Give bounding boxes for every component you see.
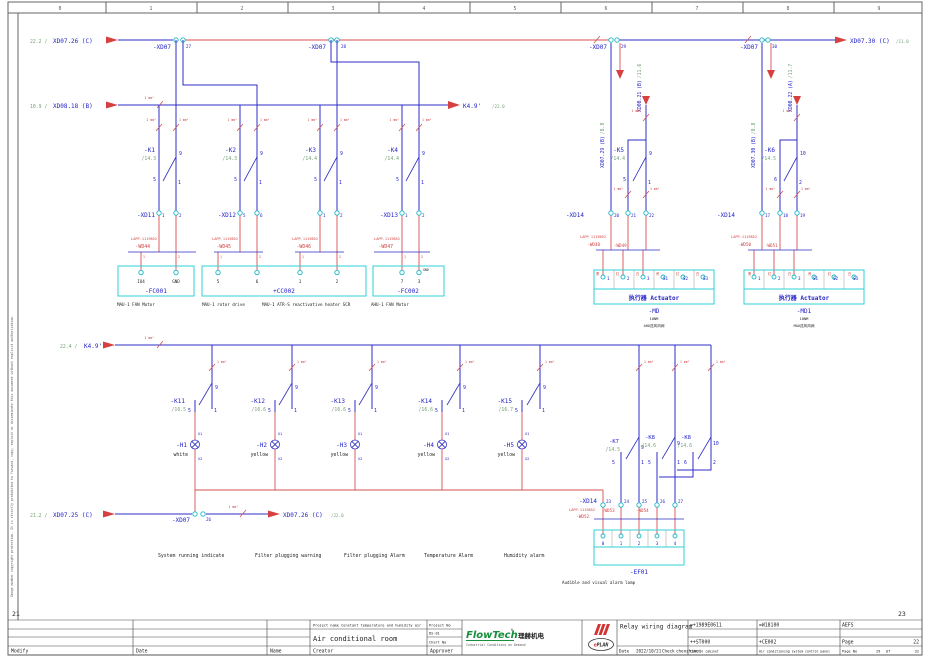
device-caption: AHU-1 FAN Motor bbox=[371, 302, 409, 307]
ruler-col: 0 bbox=[59, 6, 62, 12]
wire-color-mark: 红 bbox=[768, 271, 772, 276]
device-tag: -H2 bbox=[256, 442, 267, 449]
device-xref: /14.5 bbox=[606, 447, 621, 453]
terminal-pin: 23 bbox=[606, 499, 612, 504]
pin-label: 5 bbox=[234, 177, 237, 183]
pin-label: 9 bbox=[375, 385, 378, 391]
device-spec: 10NM bbox=[800, 317, 809, 321]
cable-tag: -WD50 bbox=[738, 242, 751, 247]
field-label-modify: Modify bbox=[11, 649, 28, 655]
pin-label: 9 bbox=[422, 151, 425, 157]
location-code-2: +CE002 bbox=[759, 640, 776, 646]
wire-gauge-label: 1 mm² bbox=[801, 187, 811, 191]
terminal-tag: -XD07 bbox=[740, 44, 758, 51]
device-boxes-top: IO4 GND 5 6 1 2 7 3 GND -FC001 +CC002 -F… bbox=[117, 266, 444, 307]
wire-gauge-label: 1 mm² bbox=[765, 187, 775, 191]
relays-k11-k15-lamps: 1 mm² 1 mm² 1 mm² 1 mm² 1 mm² -K11 /16.5… bbox=[171, 345, 603, 512]
lamp-color: yellow bbox=[498, 452, 515, 458]
check-label: Check bbox=[662, 649, 675, 654]
wire-gauge-label: 1 mm² bbox=[613, 187, 623, 191]
device-tag: -K13 bbox=[331, 398, 346, 405]
ruler-col: 7 bbox=[696, 6, 699, 12]
pin-label: 9 bbox=[543, 385, 546, 391]
wire-xref: /11.7 bbox=[788, 64, 794, 79]
lamp-color: yellow bbox=[331, 452, 348, 458]
box-pin: 3 bbox=[656, 541, 659, 546]
terminal-tag: -XD14 bbox=[579, 498, 597, 505]
wire-gauge-label: 1 mm² bbox=[340, 118, 350, 122]
box-pin: 1 bbox=[758, 276, 761, 281]
device-xref: /14.4 bbox=[611, 156, 626, 162]
wire-gauge-label: 1 mm² bbox=[782, 109, 792, 113]
box-pin: 3 bbox=[798, 276, 801, 281]
box-pin: 3 bbox=[418, 279, 421, 284]
pin-label: 5 bbox=[153, 177, 156, 183]
pin-label: 9 bbox=[340, 151, 343, 157]
doc-code: AEFS bbox=[842, 623, 854, 629]
device-caption: MAU送风风阀 bbox=[794, 323, 815, 328]
cable-mfr: LAPP.1119852 bbox=[212, 237, 238, 241]
terminal-pin: 24 bbox=[624, 499, 630, 504]
terminal-xd14-bottom: -XD14 23 24 25 26 27 LAPP.1119852 -WD52 … bbox=[569, 498, 684, 534]
wire-color-mark: 黑 bbox=[596, 272, 600, 276]
terminal-tag: -XD14 bbox=[717, 212, 735, 219]
wire-name: K4.9' bbox=[84, 343, 102, 350]
device-xref: /14.5 bbox=[762, 156, 777, 162]
wire-gauge-label: 1 mm² bbox=[680, 360, 690, 364]
of-label: Of bbox=[886, 650, 890, 654]
pin-label: 1 bbox=[648, 180, 651, 186]
pin-label: 1 bbox=[677, 460, 680, 466]
cables-wd44-wd47: LAPP.1119852 -WD44 LAPP.1119852 -WD45 LA… bbox=[128, 216, 430, 271]
pin-label: X2 bbox=[445, 457, 449, 461]
terminal-pin: 18 bbox=[783, 213, 789, 218]
wire-xref-vertical: XD08.22 (A)/11.7 bbox=[788, 64, 794, 112]
pin-label: X1 bbox=[358, 432, 362, 436]
bus-k49: 22.4 / K4.9' 1 mm² bbox=[60, 336, 711, 350]
terminal-pin: 1 bbox=[405, 213, 408, 218]
terminal-pin: 25 bbox=[642, 499, 648, 504]
terminal-pin: 28 bbox=[341, 44, 347, 49]
pin-label: 6 bbox=[684, 460, 687, 466]
pin-label: 1 bbox=[542, 408, 545, 414]
cable-tag: -WD51 bbox=[765, 243, 778, 248]
device-tag: -K8 bbox=[645, 435, 655, 441]
pin-label: 5 bbox=[515, 408, 518, 414]
box-pin: S3 bbox=[703, 276, 709, 281]
cable-tag: -WD45 bbox=[217, 244, 232, 250]
prev-page-number[interactable]: 21 bbox=[12, 610, 20, 618]
terminal-tag: -XD13 bbox=[380, 212, 398, 219]
ruler-col: 3 bbox=[332, 6, 335, 12]
location-desc: Air conditioning system control panel bbox=[759, 650, 830, 654]
device-xref: /14.4 bbox=[385, 156, 400, 162]
wire-gauge-label: 1 mm² bbox=[644, 360, 654, 364]
wire-gauge-label: 1 mm² bbox=[144, 96, 154, 100]
terminal-pin: 5 bbox=[243, 213, 246, 218]
date-label: Date bbox=[619, 649, 630, 654]
device-xref: /16.6 bbox=[252, 407, 267, 413]
terminal-pin: 2 bbox=[179, 213, 182, 218]
cable-mfr: LAPP.1119852 bbox=[292, 237, 318, 241]
terminal-row-xd11-xd13: -XD11 1 2 -XD12 5 6 1 2 -XD13 1 2 bbox=[137, 211, 425, 219]
cable-tag: -WD46 bbox=[297, 244, 312, 250]
box-pin: 1 bbox=[620, 541, 623, 546]
wire-gauge-label: 1 mm² bbox=[631, 109, 641, 113]
device-xref: /16.6 bbox=[332, 407, 347, 413]
terminal-tag: -XD12 bbox=[218, 212, 236, 219]
device-spec: 10NM bbox=[650, 317, 659, 321]
relay-k5-k6-group: XD07.29 (B)/8.8 XD07.30 (B)/8.8 XD08.21 … bbox=[566, 43, 812, 275]
device-tag: +CC002 bbox=[273, 288, 295, 295]
indicator-captions: System running indicate Filter plugging … bbox=[158, 553, 545, 559]
pin-label: 9 bbox=[260, 151, 263, 157]
pin-label: 10 bbox=[800, 151, 806, 157]
cable-tag: -WD52 bbox=[576, 514, 589, 519]
wire-xref: /22.0 bbox=[492, 104, 505, 109]
project-name: Air conditional room bbox=[313, 635, 397, 643]
device-caption: Audible and visual alarm lamp bbox=[562, 580, 636, 585]
wire-gauge-label: 1 mm² bbox=[179, 118, 189, 122]
page-value: 22 bbox=[913, 640, 919, 646]
eplan-rest: PLAN bbox=[597, 643, 609, 649]
pin-label: 2 bbox=[713, 460, 716, 466]
pin-label: 5 bbox=[314, 177, 317, 183]
pin-label: 9 bbox=[649, 151, 652, 157]
pin-label: 1 bbox=[421, 180, 424, 186]
plant-code: =+1989E0611 bbox=[690, 623, 722, 629]
field-label-name: Name bbox=[270, 649, 282, 655]
wire-xref-vertical: XD07.29 (B)/8.8 bbox=[600, 123, 606, 168]
device-tag: -EF01 bbox=[630, 569, 648, 576]
field-label-creator: Creator bbox=[313, 649, 333, 655]
pin-label: 1 bbox=[178, 180, 181, 186]
pin-label: 1 bbox=[462, 408, 465, 414]
box-pin: S2 bbox=[683, 276, 689, 281]
box-pin: IO4 bbox=[137, 279, 145, 284]
pin-label: 1 bbox=[259, 180, 262, 186]
box-pin: 6 bbox=[256, 279, 259, 284]
wire-xref-vertical: XD07.30 (B)/8.8 bbox=[751, 123, 757, 168]
pin-label: 9 bbox=[463, 385, 466, 391]
cable-tag: -WD53 bbox=[602, 508, 615, 513]
terminal-pin: 27 bbox=[678, 499, 684, 504]
device-tag: -K7 bbox=[609, 439, 619, 445]
wire-name: XD08.21 (B) bbox=[637, 80, 643, 112]
wire-gauge-label: 1 mm² bbox=[377, 360, 387, 364]
title-block: Modify Date Name Creator Approver Projec… bbox=[8, 620, 922, 655]
terminal-tag: -XD11 bbox=[137, 212, 155, 219]
cable-tag: -WD44 bbox=[136, 244, 151, 250]
ruler-col: 6 bbox=[605, 6, 608, 12]
ruler-col: 2 bbox=[241, 6, 244, 12]
caption: Humidity alarm bbox=[504, 553, 545, 559]
flowtech-logo: FlowTech bbox=[466, 630, 518, 641]
box-pin: S3 bbox=[853, 276, 859, 281]
device-tag: -K2 bbox=[225, 147, 236, 154]
cable-tag: -WD54 bbox=[636, 508, 649, 513]
terminal-pin: 1 bbox=[162, 213, 165, 218]
bus-xd07-top: 22.2 / XD07.26 (C) XD07.30 (C) /11.0 -XD… bbox=[30, 36, 909, 51]
wire-xref: 22.2 / bbox=[30, 39, 47, 45]
location-code: =W18100 bbox=[759, 623, 779, 629]
cable-mfr: LAPP.1119852 bbox=[131, 237, 157, 241]
wire-gauge-label: 1 mm² bbox=[146, 118, 156, 122]
wire-xref: 22.4 / bbox=[60, 344, 77, 350]
pin-label: 5 bbox=[268, 408, 271, 414]
pin-label: 1 bbox=[374, 408, 377, 414]
wire-gauge-label: 1 mm² bbox=[217, 360, 227, 364]
terminal-pin: 17 bbox=[765, 213, 771, 218]
actuator-md: 黑 红 白 黄 红 白 1 2 3 S1 S2 S3 执行器 Actuator … bbox=[594, 270, 714, 328]
pin-label: 5 bbox=[623, 177, 626, 183]
terminal-pin: 2 bbox=[340, 213, 343, 218]
box-pin: 2 bbox=[638, 541, 641, 546]
pin-label: X2 bbox=[278, 457, 282, 461]
device-tag: -MD bbox=[649, 308, 660, 315]
registered-mark: ® bbox=[511, 628, 513, 632]
box-pin: 1 bbox=[607, 276, 610, 281]
eplan-logo-text: ePLAN bbox=[594, 643, 609, 649]
device-tag: -K3 bbox=[305, 147, 316, 154]
pin-label: 1 bbox=[339, 180, 342, 186]
cable-core: 1 bbox=[143, 255, 145, 259]
terminal-pin: 20 bbox=[614, 213, 620, 218]
page-total: 32 bbox=[915, 650, 919, 654]
wire-color-mark: 红 bbox=[676, 271, 680, 276]
caption: System running indicate bbox=[158, 553, 225, 559]
lamp-color: white bbox=[174, 452, 189, 458]
page-label: Page bbox=[842, 640, 854, 646]
pin-label: 5 bbox=[188, 408, 191, 414]
cable-core: 2 bbox=[339, 255, 341, 259]
pin-label: 9 bbox=[179, 151, 182, 157]
device-xref: /14.4 bbox=[303, 156, 318, 162]
wire-gauge-label: 1 mm² bbox=[465, 360, 475, 364]
wire-color-mark: 白 bbox=[696, 271, 699, 276]
terminal-tag: -XD07 bbox=[589, 44, 607, 51]
wire-xref: /11.6 bbox=[637, 64, 643, 79]
terminal-tag: -XD07 bbox=[172, 517, 190, 524]
terminal-tag: -XD07 bbox=[308, 44, 326, 51]
terminal-pin: 6 bbox=[260, 213, 263, 218]
pin-label: X1 bbox=[278, 432, 282, 436]
terminal-pin: 29 bbox=[621, 44, 627, 49]
wire-xref: /22.0 bbox=[331, 513, 344, 518]
box-pin: 5 bbox=[217, 279, 220, 284]
ruler-col: 1 bbox=[150, 6, 153, 12]
pin-label: X1 bbox=[198, 432, 202, 436]
box-pin: S2 bbox=[833, 276, 839, 281]
wire-xref: /8.8 bbox=[600, 123, 606, 135]
wire-gauge-label: 1 mm² bbox=[227, 118, 237, 122]
device-tag: -FC002 bbox=[397, 288, 419, 295]
cable-core: 1 bbox=[302, 255, 304, 259]
box-pin: GND bbox=[172, 279, 180, 284]
alarm-lamp-ef01: 0 1 2 3 4 -EF01 Audible and visual alarm… bbox=[562, 530, 684, 585]
ruler-col: 9 bbox=[878, 6, 881, 12]
device-xref: /16.5 bbox=[172, 407, 187, 413]
device-tag: -K12 bbox=[251, 398, 266, 405]
document-title: Relay wiring diagram bbox=[620, 624, 693, 631]
wire-color-mark: 黄 bbox=[656, 271, 660, 276]
caption: Temperature Alarm bbox=[424, 553, 473, 559]
cable-core: 2 bbox=[421, 255, 423, 259]
plant-desc: Control cabinet bbox=[690, 650, 719, 654]
wire-name: XD07.25 (C) bbox=[53, 512, 93, 519]
chart-no-label: Chart No bbox=[429, 641, 446, 645]
device-tag: -H3 bbox=[336, 442, 347, 449]
pin-label: X1 bbox=[525, 432, 529, 436]
pin-label: X2 bbox=[198, 457, 202, 461]
pin-label: X2 bbox=[358, 457, 362, 461]
cable-core: 2 bbox=[178, 255, 180, 259]
wire-color-mark: 白 bbox=[636, 271, 639, 276]
wire-xref: /8.8 bbox=[751, 123, 757, 135]
wire-color-mark: 红 bbox=[828, 271, 832, 276]
device-tag: -K6 bbox=[764, 147, 775, 154]
box-pin: 7 bbox=[401, 279, 404, 284]
pin-label: 9 bbox=[215, 385, 218, 391]
wire-name: XD07.30 (B) bbox=[751, 136, 757, 168]
cable-core: 1 bbox=[220, 255, 222, 259]
device-tag: -K1 bbox=[144, 147, 155, 154]
wire-name: K4.9' bbox=[463, 103, 481, 110]
wire-gauge-label: 1 mm² bbox=[144, 336, 154, 340]
pin-label: 1 bbox=[641, 460, 644, 466]
device-tag: -H1 bbox=[176, 442, 187, 449]
wire-name: XD08.22 (A) bbox=[788, 80, 794, 112]
terminal-pin: 1 bbox=[323, 213, 326, 218]
device-caption: 执行器 Actuator bbox=[629, 294, 680, 302]
wire-gauge-label: 1 mm² bbox=[545, 360, 555, 364]
pin-label: 5 bbox=[612, 460, 615, 466]
device-xref: /14.6 bbox=[642, 443, 657, 449]
cable-core: 2 bbox=[259, 255, 261, 259]
box-pin: 1 bbox=[299, 279, 302, 284]
pin-label: 5 bbox=[648, 460, 651, 466]
device-tag: -K15 bbox=[498, 398, 513, 405]
wire-color-mark: 红 bbox=[616, 271, 620, 276]
relay-contacts-k1-k4: 1 mm² 1 mm² 1 mm² 1 mm² 1 mm² 1 mm² 1 mm… bbox=[142, 40, 432, 213]
device-xref: /14.3 bbox=[142, 156, 157, 162]
cable-tag: -WD47 bbox=[379, 244, 394, 250]
copyright-side-note: Image number copyright protection. It is… bbox=[10, 315, 14, 597]
device-xref: /16.7 bbox=[499, 407, 514, 413]
box-pin: 3 bbox=[647, 276, 650, 281]
caption: Filter plugging warning bbox=[255, 553, 322, 559]
flowtech-tagline: Industrial Conditions on Demand bbox=[466, 643, 526, 647]
lamp-color: yellow bbox=[418, 452, 435, 458]
pin-label: 2 bbox=[799, 180, 802, 186]
pin-label: 1 bbox=[214, 408, 217, 414]
wire-xref: 21.2 / bbox=[30, 513, 47, 519]
device-tag: -K11 bbox=[171, 398, 186, 405]
pin-label: 6 bbox=[774, 177, 777, 183]
box-pin: 2 bbox=[778, 276, 781, 281]
caption: Filter plugging Alarm bbox=[344, 553, 405, 559]
box-pin: S1 bbox=[813, 276, 819, 281]
box-pin: 4 bbox=[674, 541, 677, 546]
terminal-pin: 27 bbox=[186, 44, 192, 49]
device-tag: -MD1 bbox=[797, 308, 812, 315]
terminal-pin: 21 bbox=[631, 213, 637, 218]
relays-k7-k8: 1 mm² 1 mm² 1 mm² -K7 /14.5 9 5 1 -K8 /1… bbox=[606, 345, 726, 505]
pin-label: 1 bbox=[294, 408, 297, 414]
wire-gauge-label: 1 mm² bbox=[260, 118, 270, 122]
pin-label: 5 bbox=[348, 408, 351, 414]
device-caption: MAU-1 ATR-S reactivative heater SCR bbox=[262, 302, 351, 307]
plant-code-2: ++ST000 bbox=[690, 640, 710, 646]
field-label-date: Date bbox=[136, 649, 148, 655]
device-tag: -H5 bbox=[503, 442, 514, 449]
device-caption: 执行器 Actuator bbox=[779, 294, 830, 302]
wire-gauge-label: 1 mm² bbox=[650, 187, 660, 191]
lamp-color: yellow bbox=[251, 452, 268, 458]
schematic-canvas: 0 1 2 3 4 5 6 7 8 9 Image number copyrig… bbox=[0, 0, 930, 656]
box-pin: S1 bbox=[663, 276, 669, 281]
wire-name: XD07.30 (C) bbox=[850, 38, 890, 45]
wire-name: XD07.26 (C) bbox=[53, 38, 93, 45]
pin-label: 5 bbox=[396, 177, 399, 183]
field-label-approver: Approver bbox=[430, 649, 453, 655]
device-caption: AHU送风风阀 bbox=[644, 323, 665, 328]
wire-name: XD07.26 (C) bbox=[283, 512, 323, 519]
date-value: 2022/10/21 bbox=[636, 649, 662, 654]
pin-label: 5 bbox=[435, 408, 438, 414]
cable-mfr: LAPP.1119852 bbox=[580, 235, 606, 239]
bus-xd08-18: 10.9 / XD08.18 (B) K4.9' /22.0 1 mm² bbox=[30, 96, 505, 110]
device-tag: -K8 bbox=[681, 435, 691, 441]
device-tag: -K4 bbox=[387, 147, 398, 154]
ruler-col: 5 bbox=[514, 6, 517, 12]
terminal-pin: 19 bbox=[800, 213, 806, 218]
project-name-label: Project name Constant temperature and hu… bbox=[313, 624, 422, 628]
wire-name: XD08.18 (B) bbox=[53, 103, 93, 110]
device-caption: MAU-1 FAN Motor bbox=[117, 302, 155, 307]
wire-color-mark: 白 bbox=[848, 271, 851, 276]
pageno-value: 29 bbox=[876, 650, 880, 654]
ruler-col: 4 bbox=[423, 6, 426, 12]
pin-label: X1 bbox=[445, 432, 449, 436]
pageno-label: Page No bbox=[842, 650, 857, 654]
wire-gauge-label: 1 mm² bbox=[389, 118, 399, 122]
device-tag: -H4 bbox=[423, 442, 434, 449]
cable-core: 1 bbox=[404, 255, 406, 259]
ruler-col: 8 bbox=[787, 6, 790, 12]
device-xref: /14.6 bbox=[678, 443, 693, 449]
pin-label: 10 bbox=[713, 441, 719, 447]
cable-mfr: LAPP.1119852 bbox=[374, 237, 400, 241]
next-page-number[interactable]: 23 bbox=[898, 610, 906, 618]
wire-xref: 10.9 / bbox=[30, 104, 47, 110]
bus-xd07-bottom: 21.2 / XD07.25 (C) XD07.26 (C) /22.0 -XD… bbox=[30, 505, 344, 524]
terminal-pin: 30 bbox=[772, 44, 778, 49]
terminal-pin: 2 bbox=[422, 213, 425, 218]
terminal-tag: -XD07 bbox=[153, 44, 171, 51]
project-no-label: Project No bbox=[429, 624, 451, 628]
wire-color-mark: 黑 bbox=[748, 272, 752, 276]
wire-color-mark: 黄 bbox=[808, 271, 812, 276]
device-tag: -K5 bbox=[613, 147, 624, 154]
wire-gauge-label: 1 mm² bbox=[422, 118, 432, 122]
box-pin: 2 bbox=[627, 276, 630, 281]
cable-tag: -WD49 bbox=[614, 243, 627, 248]
terminal-tag: -XD14 bbox=[566, 212, 584, 219]
pin-label: X2 bbox=[525, 457, 529, 461]
wire-name: XD07.29 (B) bbox=[600, 136, 606, 168]
wire-color-mark: 白 bbox=[788, 271, 791, 276]
